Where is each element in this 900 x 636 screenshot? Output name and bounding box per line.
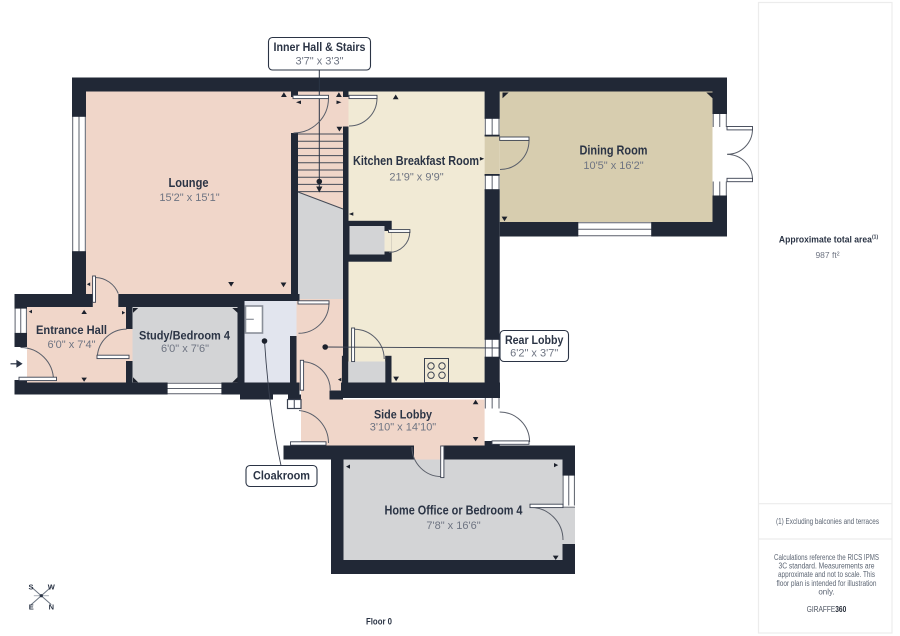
svg-text:Approximate total area: Approximate total area (779, 235, 873, 245)
svg-text:Rear Lobby: Rear Lobby (505, 335, 564, 347)
svg-text:Home Office or Bedroom 4: Home Office or Bedroom 4 (385, 504, 523, 518)
svg-text:Study/Bedroom 4: Study/Bedroom 4 (139, 329, 230, 343)
svg-text:6'0" x 7'6": 6'0" x 7'6" (161, 343, 209, 355)
svg-text:3'10" x 14'10": 3'10" x 14'10" (370, 422, 437, 434)
svg-text:6'2" x 3'7": 6'2" x 3'7" (510, 348, 558, 360)
svg-text:only.: only. (818, 587, 834, 596)
svg-text:Entrance Hall: Entrance Hall (36, 323, 107, 337)
svg-text:Side Lobby: Side Lobby (374, 407, 432, 421)
svg-text:987 ft²: 987 ft² (815, 250, 839, 260)
svg-text:W: W (48, 583, 56, 592)
svg-text:N: N (49, 603, 54, 612)
svg-text:(1) Excluding balconies and te: (1) Excluding balconies and terraces (776, 517, 879, 526)
svg-text:Inner Hall & Stairs: Inner Hall & Stairs (274, 42, 366, 54)
svg-text:3'7" x 3'3": 3'7" x 3'3" (295, 56, 343, 68)
svg-text:Kitchen Breakfast Room: Kitchen Breakfast Room (353, 154, 479, 168)
svg-text:S: S (28, 583, 33, 592)
svg-text:Cloakroom: Cloakroom (253, 471, 310, 483)
svg-text:10'5" x 16'2": 10'5" x 16'2" (583, 160, 643, 172)
svg-text:GIRAFFE360: GIRAFFE360 (807, 604, 847, 614)
svg-text:15'2" x 15'1": 15'2" x 15'1" (159, 192, 219, 204)
svg-text:Dining Room: Dining Room (580, 143, 648, 157)
svg-text:Lounge: Lounge (169, 176, 209, 190)
svg-text:(1): (1) (872, 235, 878, 241)
svg-text:21'9" x 9'9": 21'9" x 9'9" (389, 172, 443, 184)
svg-text:6'0" x 7'4": 6'0" x 7'4" (47, 339, 95, 351)
svg-text:Floor 0: Floor 0 (366, 617, 392, 628)
svg-text:E: E (29, 603, 34, 612)
svg-text:7'8" x 16'6": 7'8" x 16'6" (426, 520, 480, 532)
